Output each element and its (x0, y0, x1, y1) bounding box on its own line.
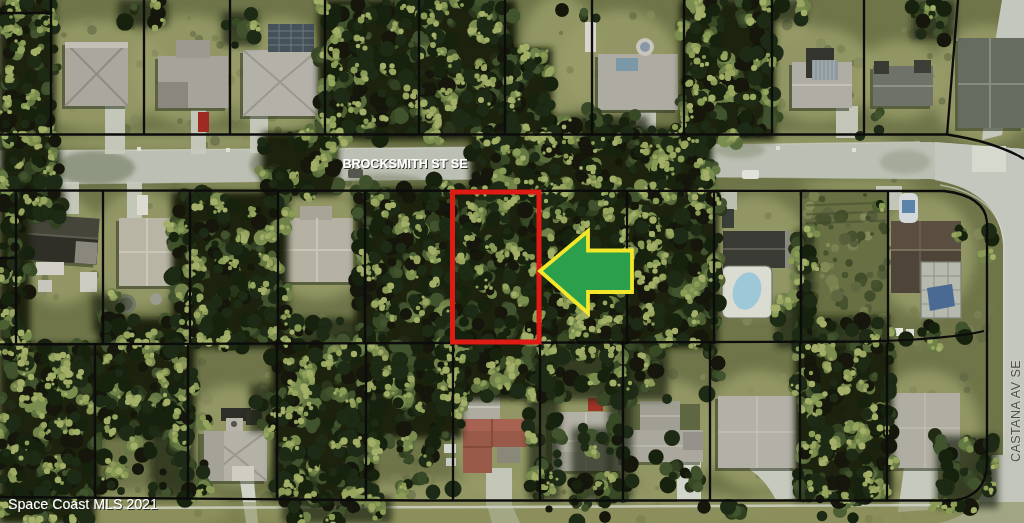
svg-text:Space Coast MLS 2021: Space Coast MLS 2021 (8, 496, 158, 512)
svg-text:CASTANA AV SE: CASTANA AV SE (1009, 360, 1023, 462)
svg-text:BROCKSMITH ST SE: BROCKSMITH ST SE (342, 157, 467, 171)
